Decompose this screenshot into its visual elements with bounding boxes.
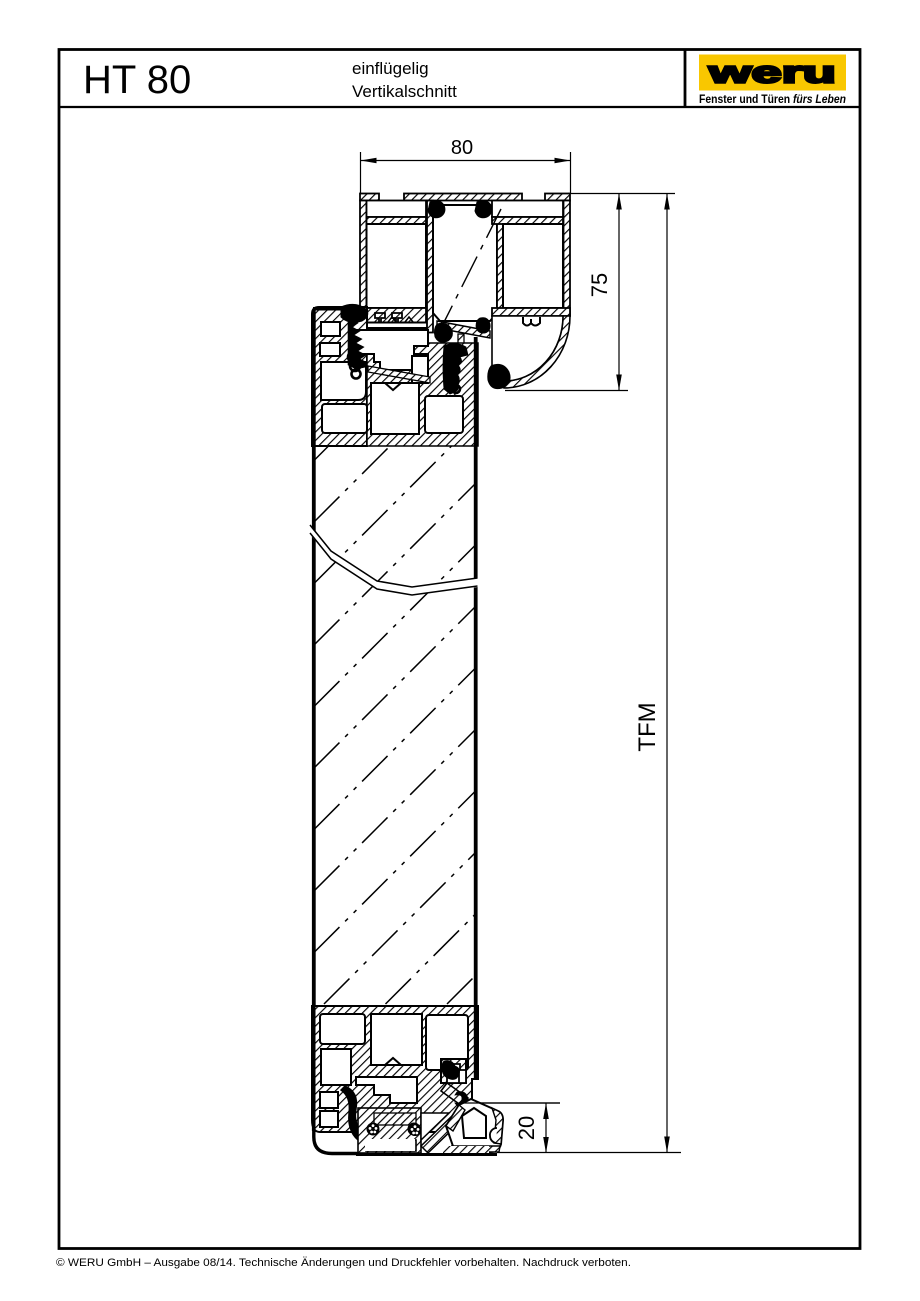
svg-text:© WERU GmbH – Ausgabe 08/14. T: © WERU GmbH – Ausgabe 08/14. Technische … — [56, 1257, 631, 1269]
svg-text:einflügelig: einflügelig — [352, 59, 429, 78]
svg-text:80: 80 — [451, 137, 473, 159]
svg-text:Fenster und Türen fürs Leben: Fenster und Türen fürs Leben — [699, 94, 846, 106]
svg-text:20: 20 — [514, 1116, 539, 1140]
svg-text:Vertikalschnitt: Vertikalschnitt — [352, 82, 457, 101]
svg-text:HT 80: HT 80 — [83, 58, 191, 102]
svg-text:TFM: TFM — [634, 702, 661, 751]
svg-text:weru: weru — [707, 55, 836, 90]
svg-text:75: 75 — [587, 273, 612, 297]
